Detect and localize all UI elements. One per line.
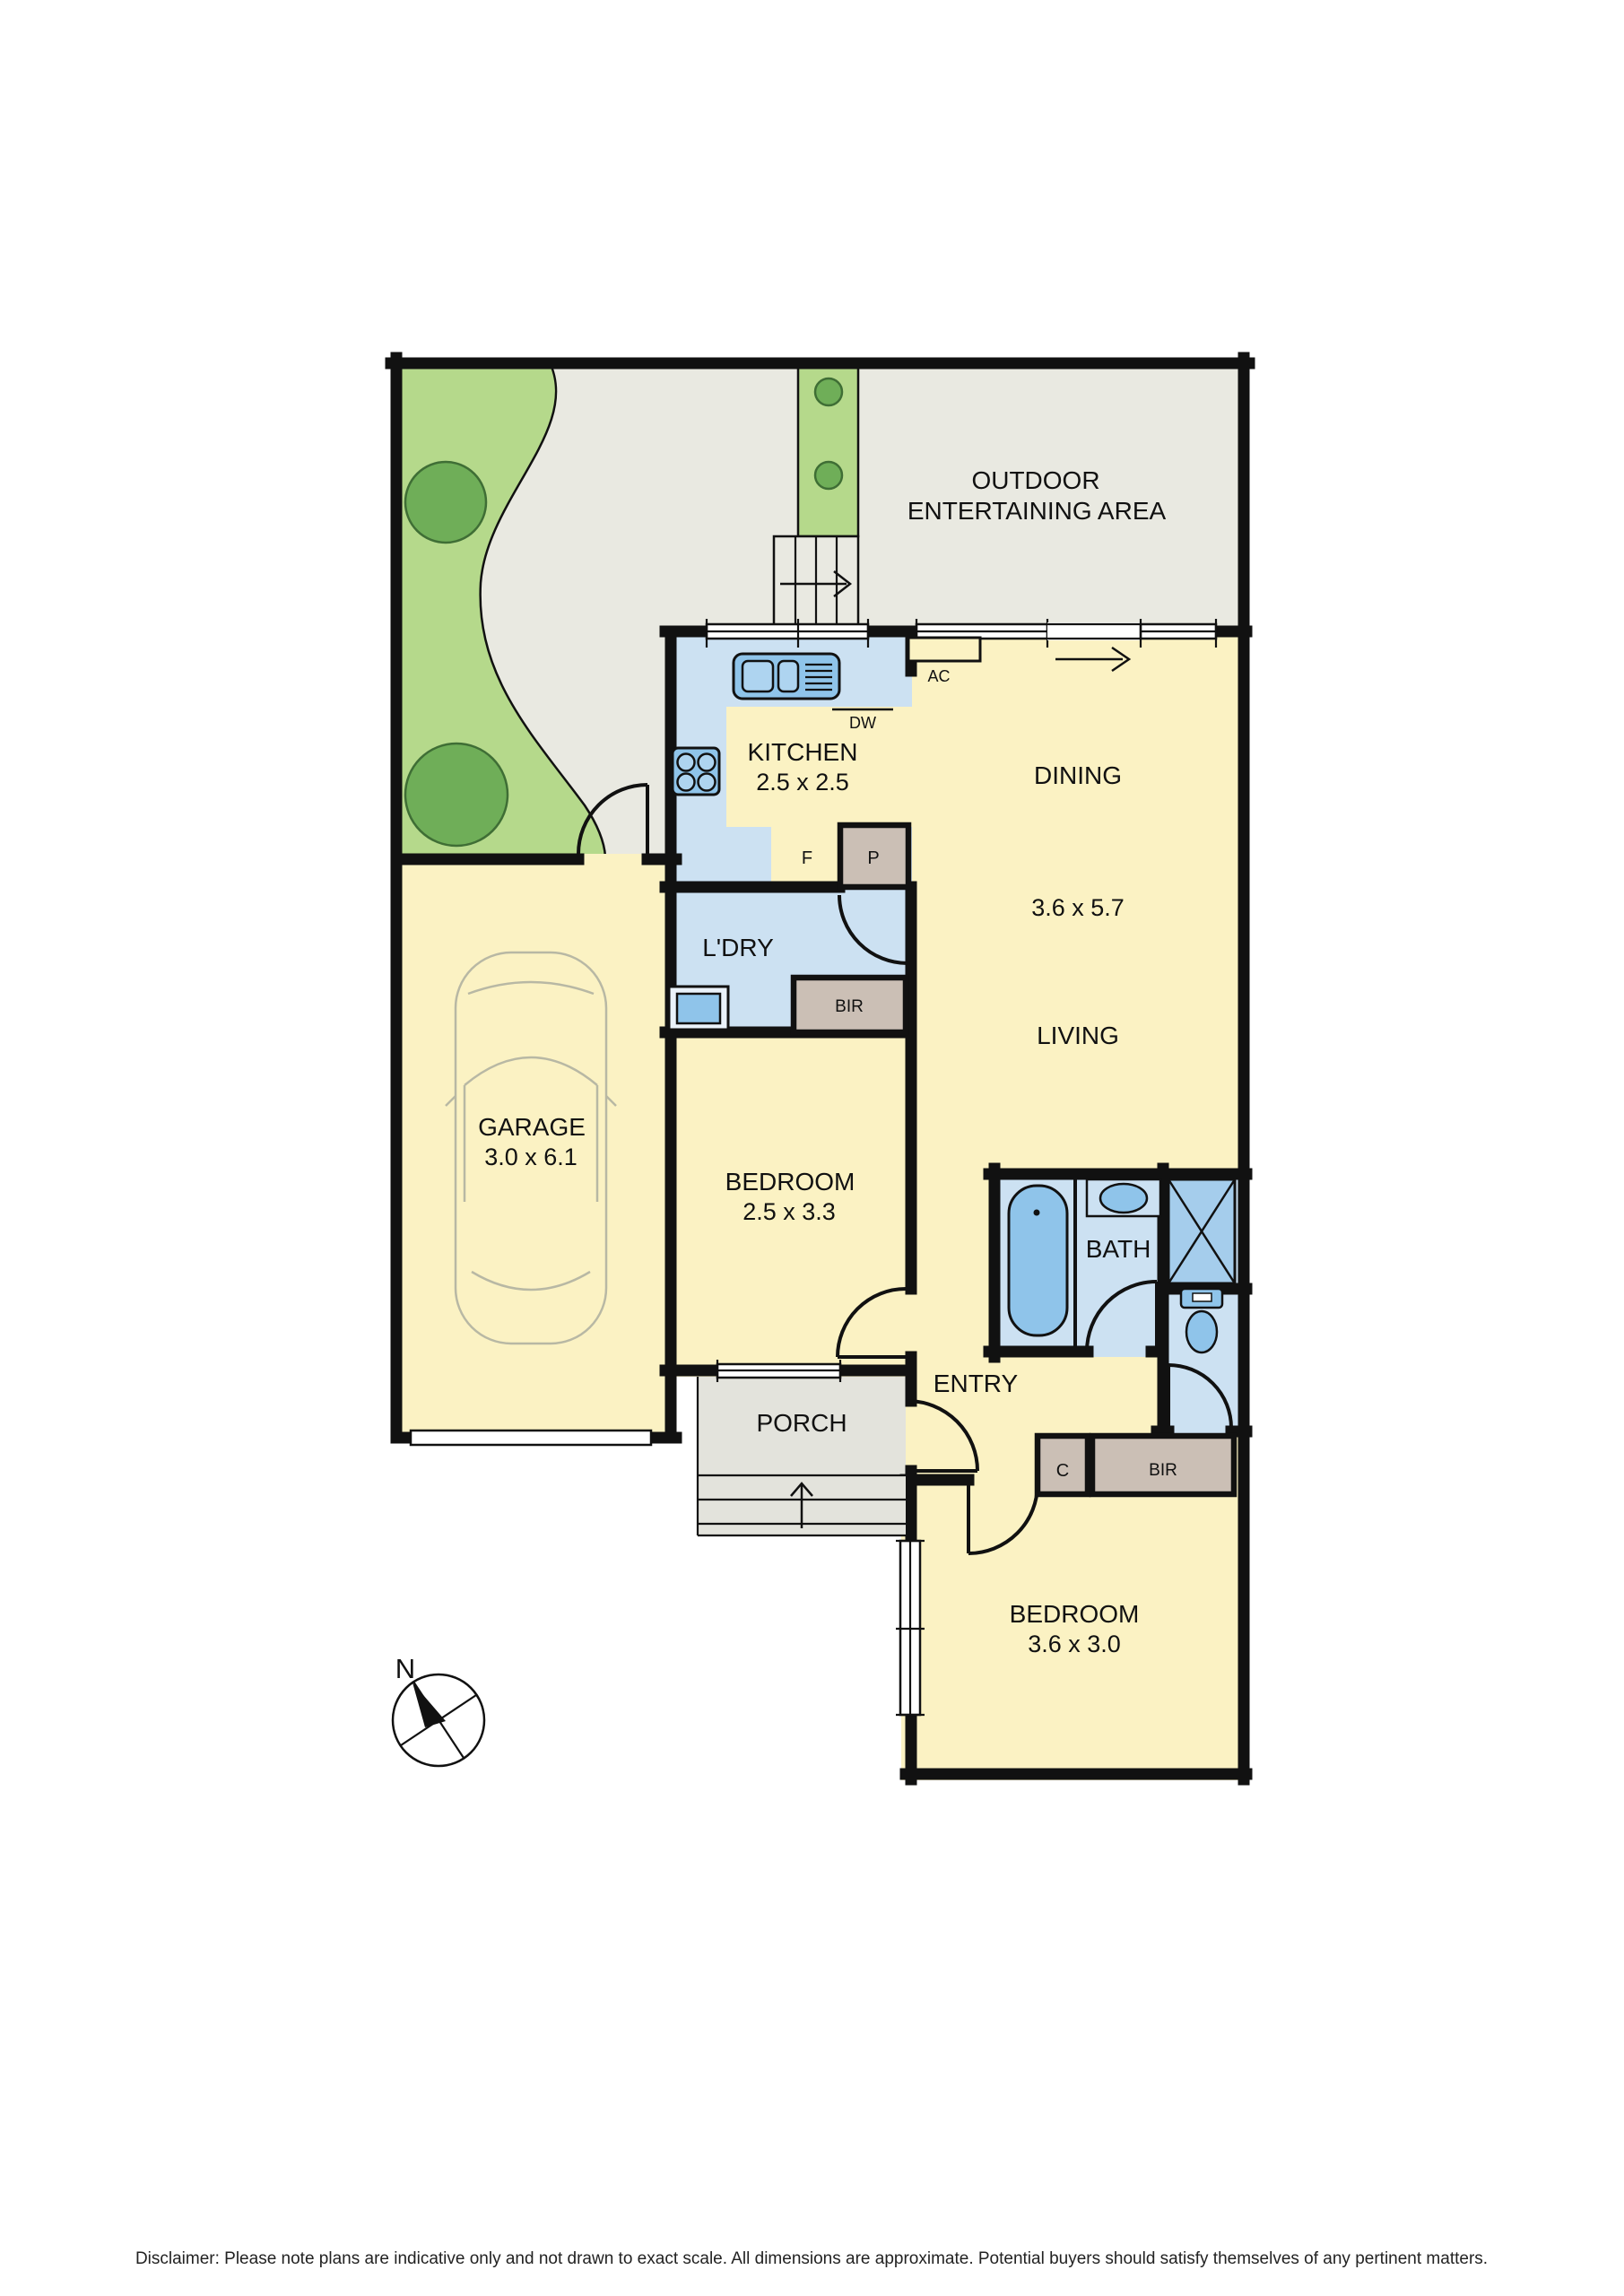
porch-label: PORCH [756, 1409, 847, 1437]
north-compass-icon: N [393, 1653, 484, 1766]
outdoor-label-line1: OUTDOOR [971, 466, 1099, 494]
bedroom-mid-dims: 2.5 x 3.3 [743, 1198, 836, 1225]
bedroom-rear-label: BEDROOM [1010, 1600, 1140, 1628]
kitchen-label: KITCHEN [748, 738, 858, 766]
floorplan-drawing: N OUTDOOR ENTERTAINING AREA KITCHEN 2.5 … [0, 0, 1624, 2296]
kitchen-inner-floor [726, 707, 912, 827]
floorplan-page: N OUTDOOR ENTERTAINING AREA KITCHEN 2.5 … [0, 0, 1624, 2296]
garage-dims: 3.0 x 6.1 [484, 1144, 578, 1170]
living-label: LIVING [1037, 1022, 1119, 1049]
disclaimer-text: Disclaimer: Please note plans are indica… [135, 2249, 1488, 2268]
living-dining-dims: 3.6 x 5.7 [1031, 894, 1125, 921]
entry-label: ENTRY [934, 1370, 1019, 1397]
window-icon [896, 1541, 925, 1715]
stairs-icon [774, 536, 858, 630]
bathtub-icon [1009, 1186, 1067, 1335]
pantry-label: P [867, 848, 879, 868]
ac-label: AC [927, 667, 950, 685]
bedroom-mid-label: BEDROOM [725, 1168, 855, 1196]
laundry-label: L'DRY [702, 934, 774, 961]
shower-icon [1168, 1179, 1235, 1283]
dishwasher-label: DW [849, 714, 876, 732]
cupboard-label: C [1056, 1461, 1069, 1481]
garage-door [411, 1431, 651, 1445]
laundry-trough-icon [669, 987, 728, 1030]
kitchen-dims: 2.5 x 2.5 [756, 769, 849, 796]
garage-label: GARAGE [478, 1113, 586, 1141]
vanity-basin-icon [1087, 1179, 1160, 1216]
window-icon [717, 1360, 840, 1382]
robe-laundry-label: BIR [835, 997, 864, 1016]
cooktop-icon [673, 748, 719, 795]
tree-icon [405, 744, 508, 846]
sink-icon [734, 654, 839, 699]
ac-unit [908, 638, 980, 661]
bath-label: BATH [1086, 1235, 1151, 1263]
sliding-door-opening [1047, 622, 1141, 640]
tree-icon [405, 462, 486, 543]
dining-label: DINING [1034, 761, 1122, 789]
robe-entry-label: BIR [1149, 1461, 1177, 1480]
tree-icon [815, 462, 842, 489]
tree-icon [815, 378, 842, 405]
outdoor-label-line2: ENTERTAINING AREA [908, 497, 1167, 525]
north-label: N [395, 1653, 415, 1684]
fridge-label: F [802, 848, 812, 868]
bedroom-rear-dims: 3.6 x 3.0 [1028, 1631, 1121, 1657]
